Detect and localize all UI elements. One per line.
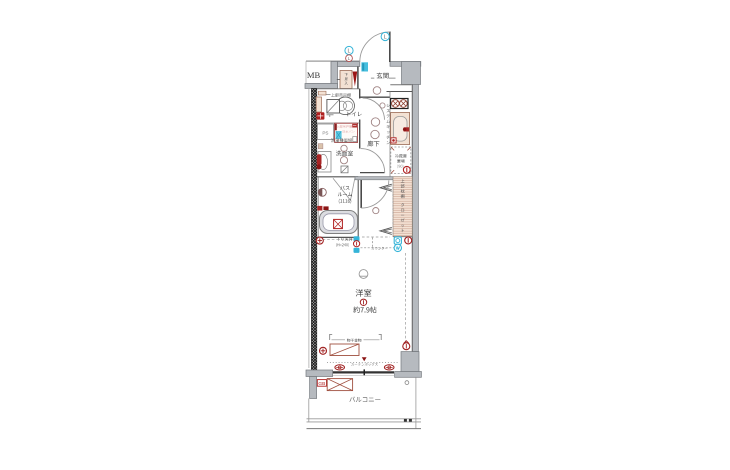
svg-text:PS: PS: [322, 130, 328, 135]
svg-text:L: L: [384, 35, 387, 41]
svg-text:MB: MB: [307, 70, 321, 80]
svg-text:L: L: [348, 49, 351, 55]
svg-text:GB: GB: [318, 381, 325, 387]
svg-text:L: L: [348, 56, 351, 61]
